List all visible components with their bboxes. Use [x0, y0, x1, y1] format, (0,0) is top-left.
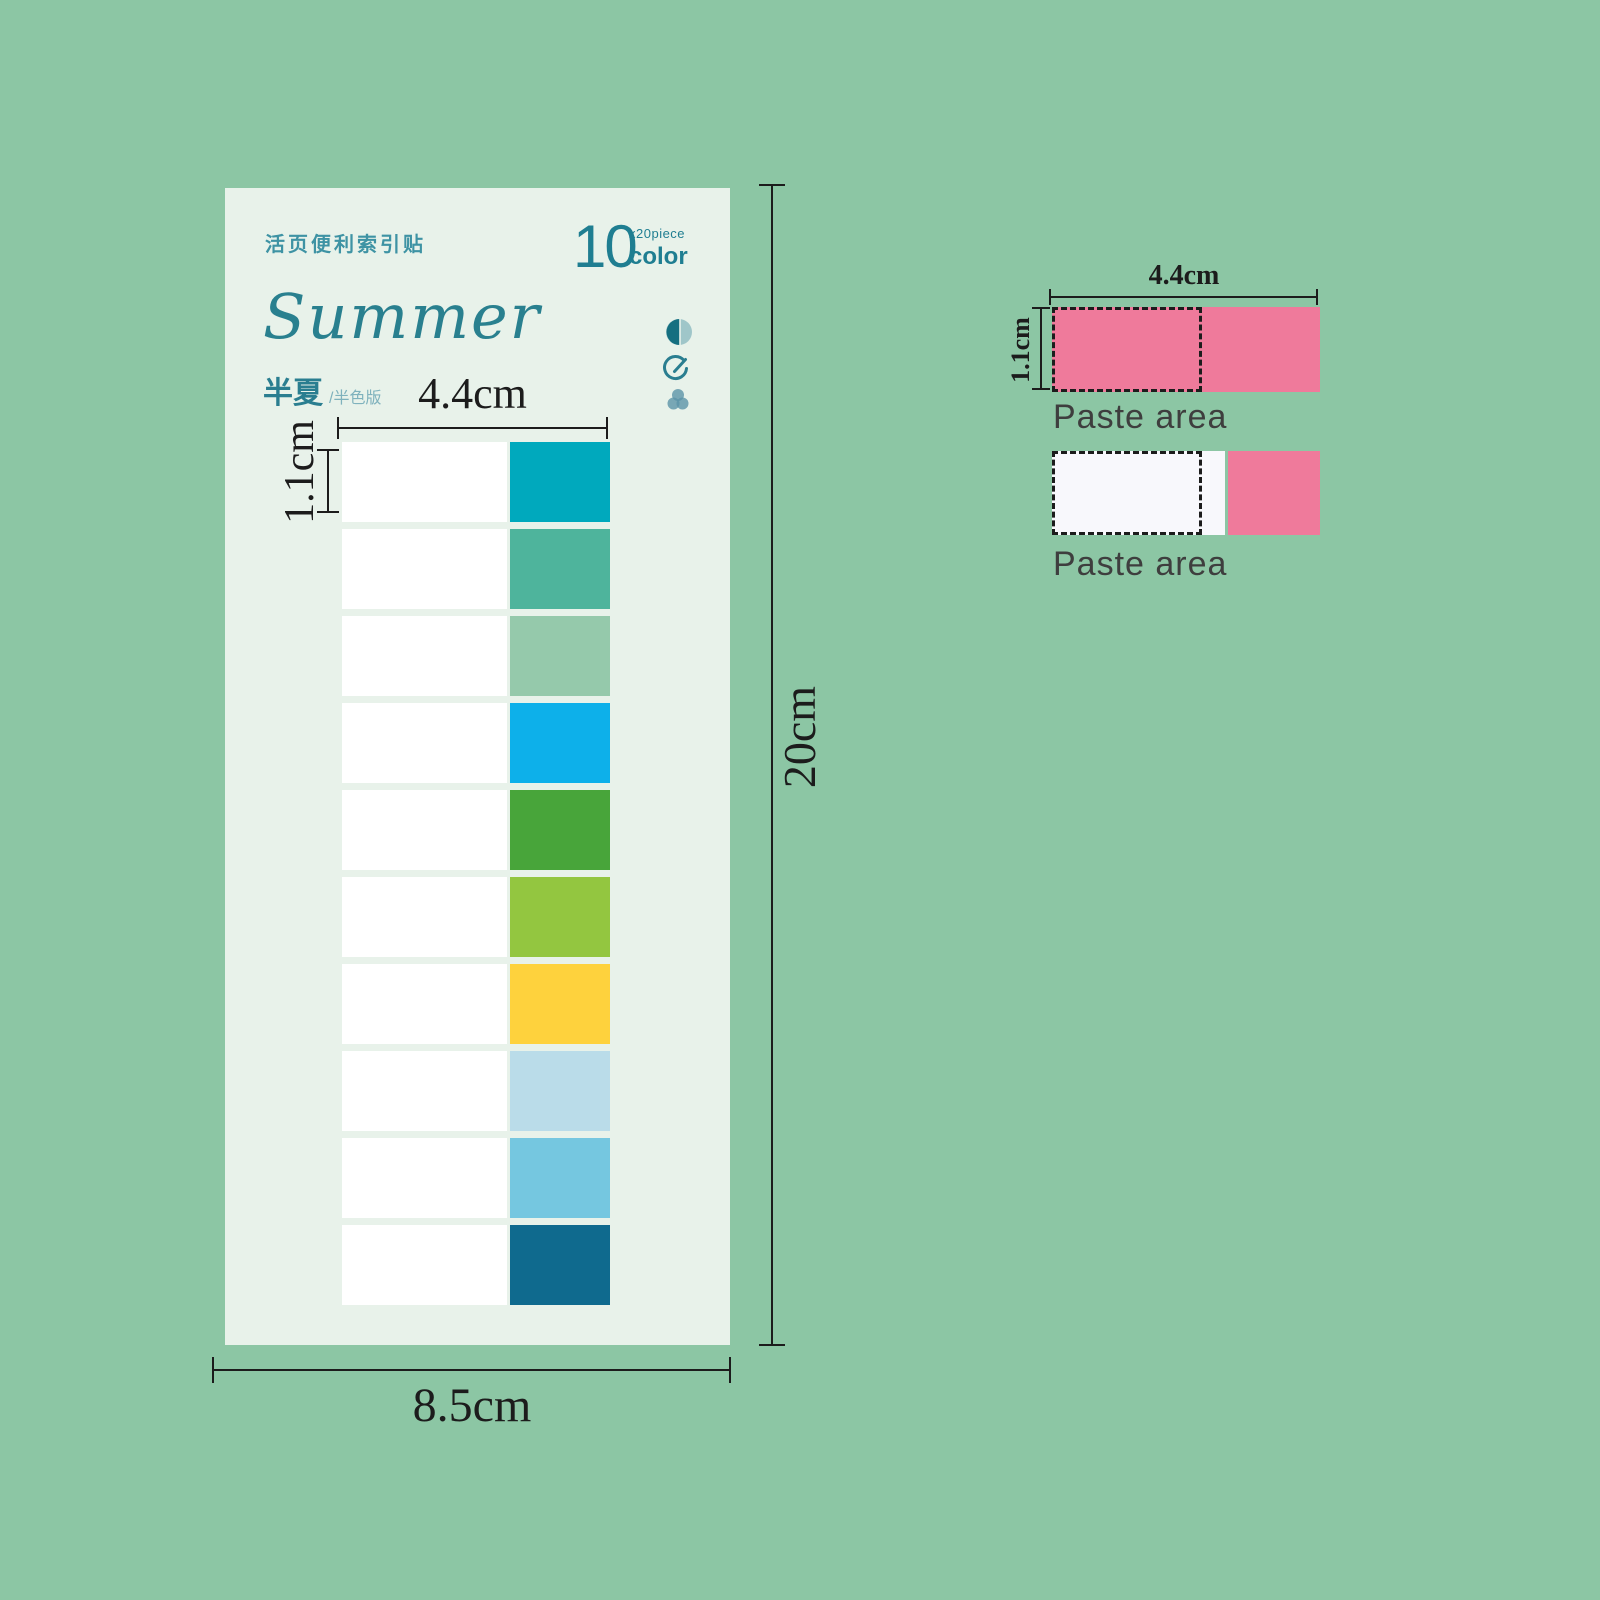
index-tab-row-10 [342, 1225, 610, 1305]
count-pieces-label: x20piece [629, 226, 688, 241]
tab-height-dimension-label: 1.1cm [275, 397, 325, 547]
dimension-tick [759, 184, 785, 186]
dimension-tick [1049, 289, 1051, 305]
count-color-label: color [629, 243, 688, 271]
index-tab-row-2 [342, 529, 610, 609]
index-tab-row-7 [342, 964, 610, 1044]
paste-area-outline [1052, 451, 1202, 535]
index-tab-row-3 [342, 616, 610, 696]
index-tab-row-4 [342, 703, 610, 783]
card-chinese-header: 活页便利索引贴 [265, 228, 426, 257]
tab-height-dimension-line [327, 450, 329, 513]
tab-color-swatch [510, 877, 610, 957]
tab-back-color-tip [1228, 451, 1320, 535]
product-title: Summer [263, 280, 541, 353]
tab-color-swatch [510, 529, 610, 609]
dimension-tick [1316, 289, 1318, 305]
tab-write-area [342, 616, 507, 696]
dimension-tick [317, 449, 339, 451]
tab-write-area [342, 964, 507, 1044]
tab-width-dimension-line [337, 427, 608, 429]
tab-front-view [1052, 307, 1320, 392]
paste-area-outline [1052, 307, 1202, 392]
tab-color-swatch [510, 442, 610, 522]
paste-width-dimension-line [1050, 296, 1318, 298]
tri-color-circles-icon [666, 388, 690, 412]
tab-write-area [342, 877, 507, 957]
dimension-tick [1032, 388, 1050, 390]
count-number: 10 [573, 220, 636, 274]
dimension-tick [759, 1344, 785, 1346]
paste-height-dimension-line [1040, 308, 1042, 390]
dimension-tick [337, 417, 339, 439]
sticky-note-card: 活页便利索引贴 10 x20piece color Summer 半夏/半色版 [225, 188, 730, 1345]
tab-back-view [1052, 451, 1225, 535]
tab-write-area [342, 790, 507, 870]
index-tab-row-6 [342, 877, 610, 957]
dimension-tick [1032, 307, 1050, 309]
tab-color-swatch [510, 616, 610, 696]
tab-color-swatch [510, 790, 610, 870]
card-width-dimension-label: 8.5cm [213, 1378, 731, 1433]
tab-color-swatch [510, 1051, 610, 1131]
half-tone-circle-icon [665, 318, 693, 346]
count-details: x20piece color [629, 226, 688, 271]
index-tab-row-1 [342, 442, 610, 522]
index-tab-sheet [342, 442, 610, 1305]
tab-write-area [342, 703, 507, 783]
pen-circle-icon [663, 355, 689, 381]
tab-write-area [342, 442, 507, 522]
card-height-dimension-label: 20cm [775, 682, 825, 792]
tab-write-area [342, 1138, 507, 1218]
dimension-tick [317, 511, 339, 513]
card-height-dimension-line [771, 185, 773, 1346]
tab-color-swatch [510, 964, 610, 1044]
tab-write-area [342, 529, 507, 609]
tab-color-swatch [510, 703, 610, 783]
tab-color-swatch [510, 1225, 610, 1305]
tab-width-dimension-label: 4.4cm [337, 368, 608, 419]
index-tab-row-9 [342, 1138, 610, 1218]
tab-write-area [342, 1051, 507, 1131]
tab-color-swatch [510, 1138, 610, 1218]
paste-width-dimension-label: 4.4cm [1050, 260, 1318, 292]
card-width-dimension-line [213, 1369, 731, 1371]
paste-area-caption-bottom: Paste area [1053, 545, 1227, 584]
index-tab-row-8 [342, 1051, 610, 1131]
product-image: 活页便利索引贴 10 x20piece color Summer 半夏/半色版 [0, 0, 1600, 1600]
paste-height-dimension-label: 1.1cm [997, 300, 1045, 400]
paste-area-caption-top: Paste area [1053, 398, 1227, 437]
index-tab-row-5 [342, 790, 610, 870]
dimension-tick [606, 417, 608, 439]
tab-write-area [342, 1225, 507, 1305]
